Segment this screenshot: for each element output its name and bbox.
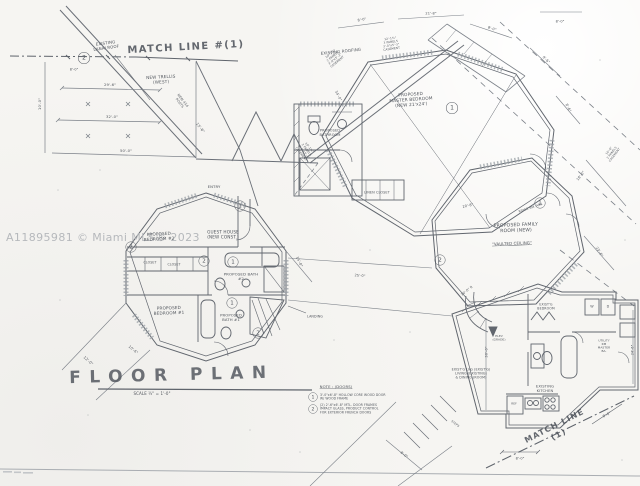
entry-steps — [404, 396, 456, 448]
roof-lines — [60, 6, 464, 163]
floor-plan-scan: A11895981 © Miami MLS® 2023 MATCH LINE #… — [0, 0, 640, 486]
existing-house-interior — [489, 294, 635, 414]
guest-house-windows — [126, 195, 286, 338]
mls-watermark: A11895981 © Miami MLS® 2023 — [6, 231, 200, 244]
note-marker-2: 2 — [253, 328, 264, 339]
note-marker-2: 2 — [199, 256, 210, 267]
note-marker-1: 1 — [535, 198, 546, 209]
guest-house-interior — [127, 196, 306, 356]
curved-steps — [465, 292, 492, 332]
note-marker-1: 1 — [308, 392, 317, 401]
note-marker-2: 2 — [435, 255, 446, 266]
master-suite-outline — [322, 50, 554, 236]
note-marker-1: 1 — [228, 257, 239, 268]
trellis — [45, 61, 318, 206]
note-marker-2: 2 — [126, 242, 137, 253]
match-line-bottom — [486, 310, 634, 468]
scan-frame — [0, 469, 640, 476]
note-marker-2: 2 — [308, 404, 317, 413]
note-marker-1: 1 — [227, 298, 238, 309]
title-underline — [98, 389, 312, 390]
site-dim-lines — [62, 251, 452, 486]
note-marker-1: 1 — [446, 102, 458, 114]
master-bath-annex — [294, 104, 404, 200]
upper-dim-lines — [338, 12, 626, 270]
match-line-top — [10, 55, 238, 61]
note-marker-2: 2 — [78, 52, 90, 64]
note-marker-1: 1 — [235, 201, 246, 212]
